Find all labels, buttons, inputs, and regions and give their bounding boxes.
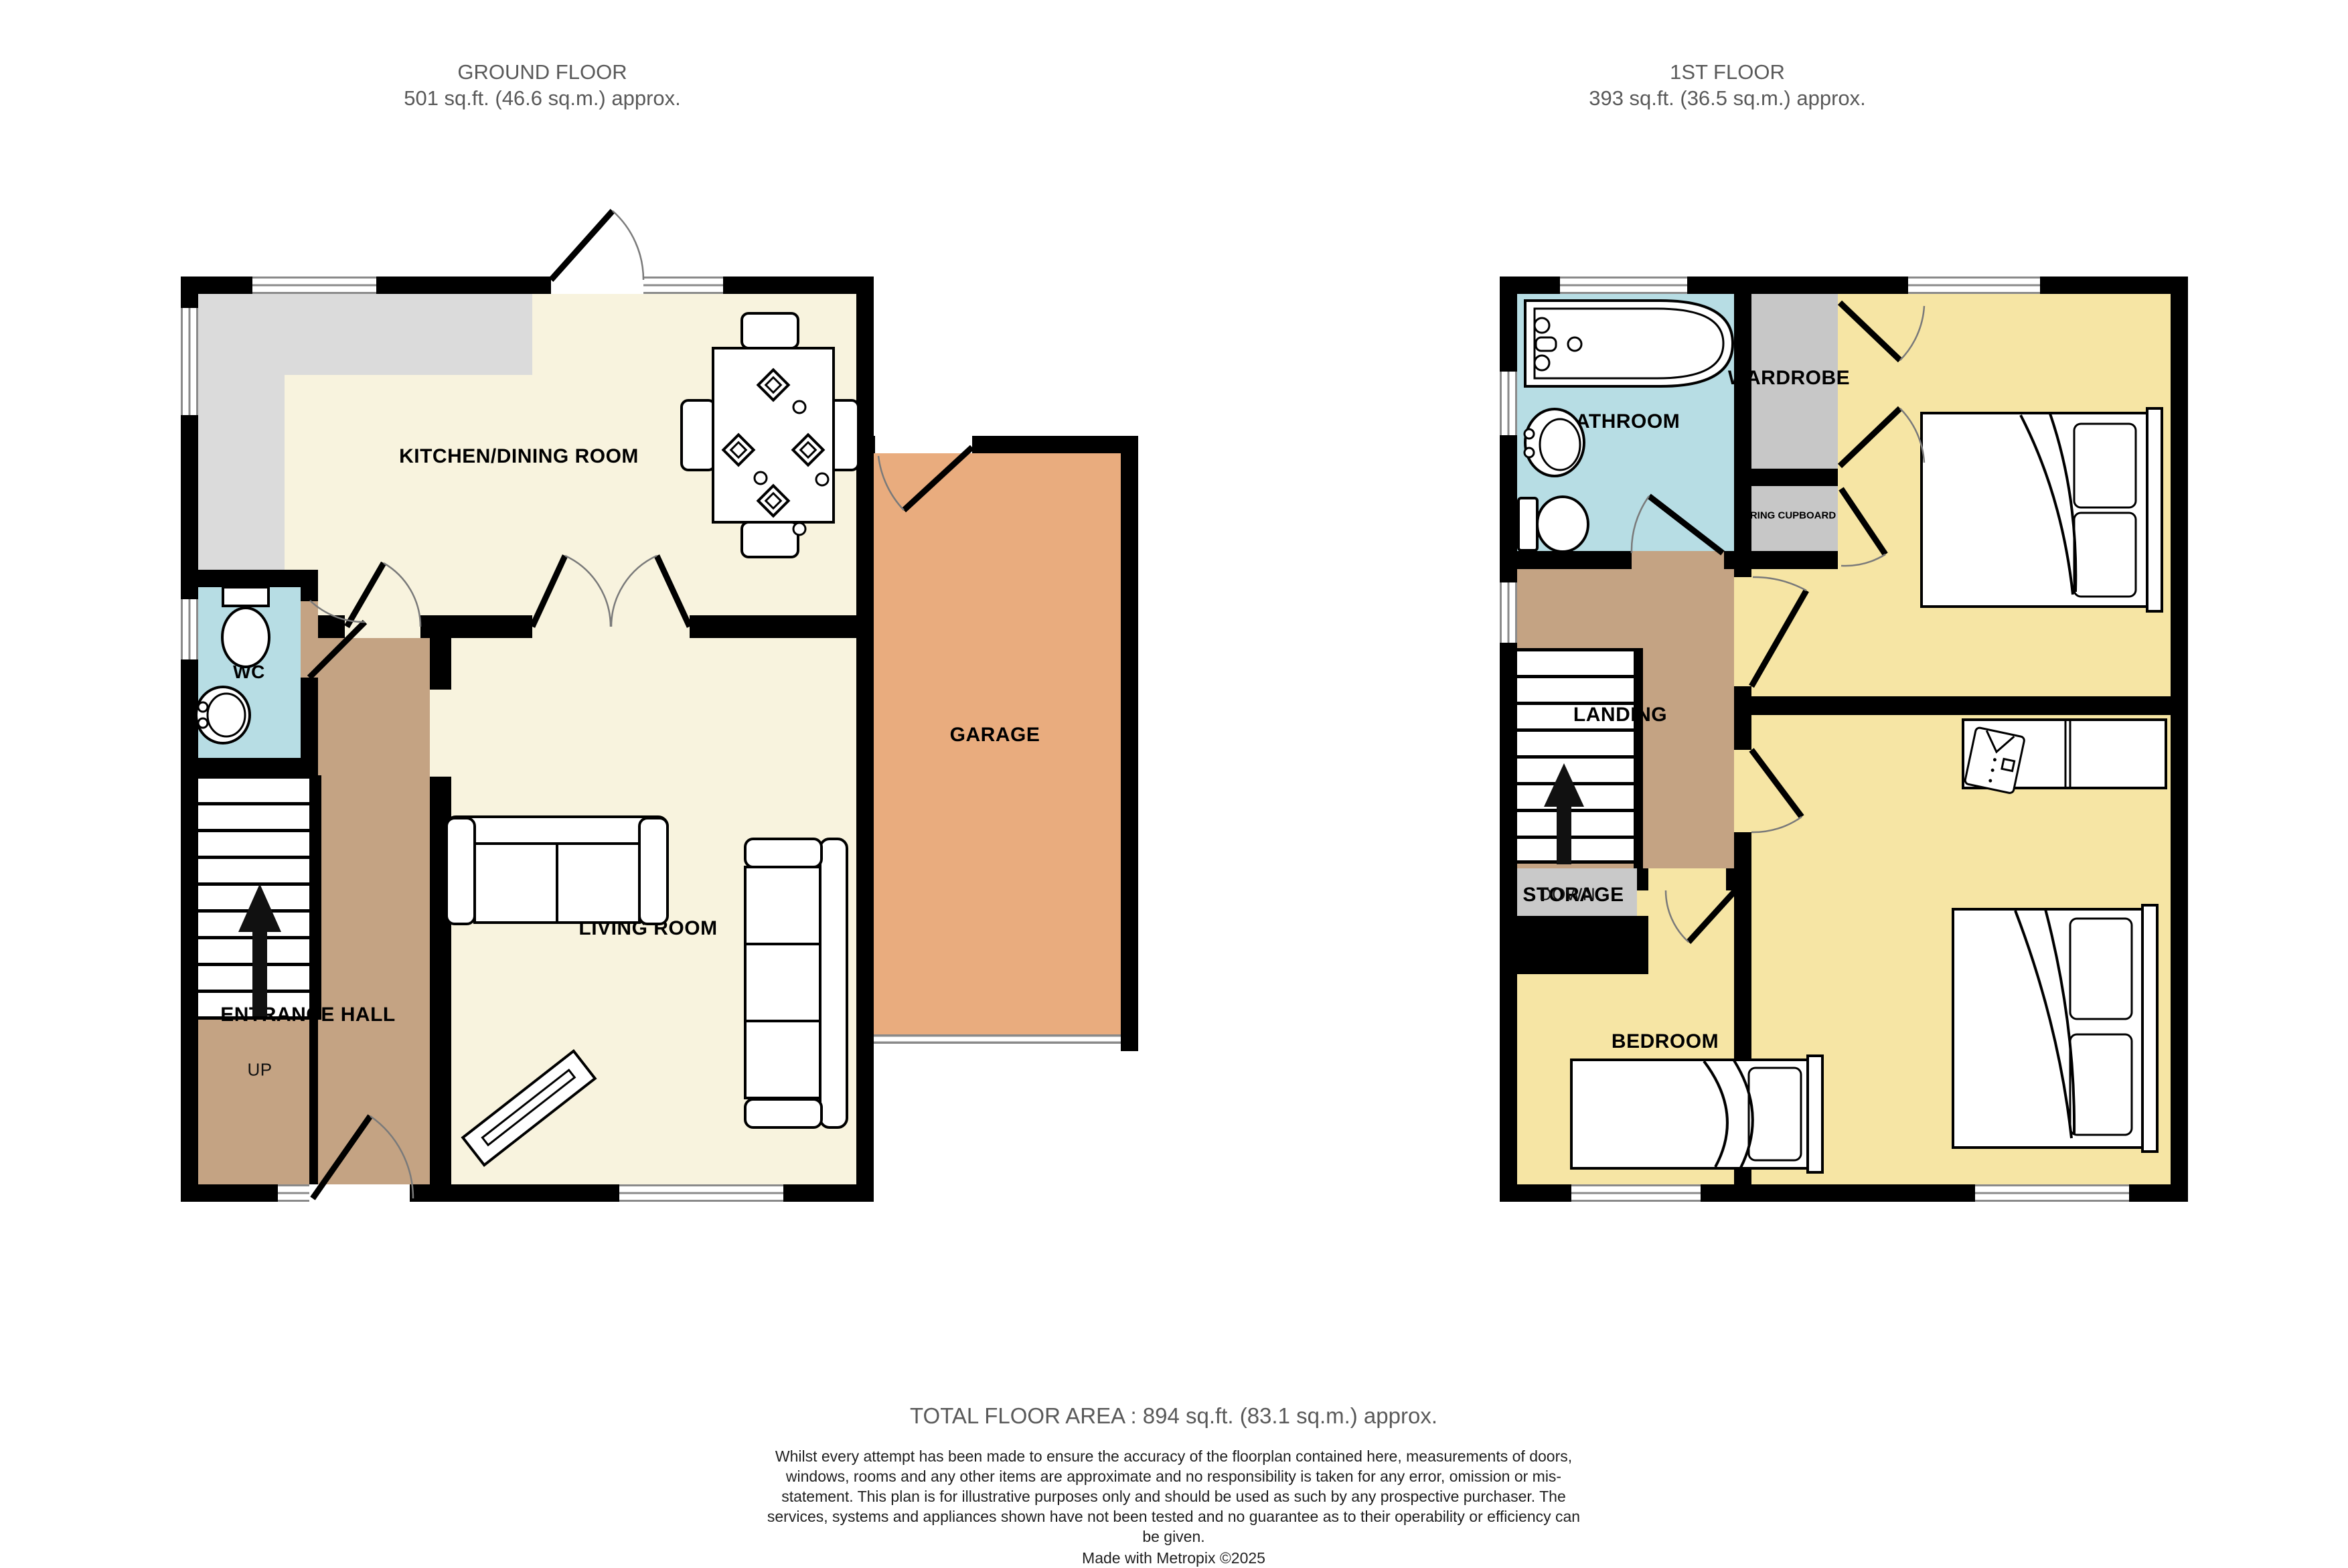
tv-unit-icon (463, 1051, 595, 1165)
sofa-icon (447, 817, 668, 924)
wardrobe-door-leaf (1840, 303, 1900, 360)
double-bed-icon (1953, 905, 2157, 1152)
door-arc (611, 556, 657, 627)
door-arc (565, 556, 611, 627)
front-door-leaf (313, 1116, 370, 1198)
door-arc (370, 1116, 413, 1198)
door-arc (1753, 577, 1806, 591)
stairs-up-arrow (238, 884, 281, 1016)
bathtub-icon (1525, 301, 1733, 386)
footer: TOTAL FLOOR AREA : 894 sq.ft. (83.1 sq.m… (759, 1403, 1589, 1568)
wardrobe-door-leaf (1840, 408, 1900, 466)
door-arc (613, 211, 643, 280)
sink-icon (196, 687, 250, 743)
door-arc (878, 456, 904, 510)
stairs-down-arrow (1544, 763, 1584, 864)
double-bed-icon (1922, 408, 2162, 611)
door-arc (1900, 306, 1924, 360)
sofa-icon (745, 839, 847, 1127)
door-arc (1666, 890, 1689, 942)
dining-table-icon (682, 313, 858, 557)
door-arc (1632, 496, 1649, 553)
french-door-leaf (657, 556, 690, 627)
bedroom-front-door-leaf (1751, 591, 1806, 686)
floorplan-page: { "ground_floor": { "title": "GROUND FLO… (0, 0, 2348, 1544)
back-door-leaf (551, 211, 613, 280)
fixtures-overlay (0, 0, 2348, 1544)
total-floor-area: TOTAL FLOOR AREA : 894 sq.ft. (83.1 sq.m… (759, 1403, 1589, 1429)
toilet-icon (222, 587, 269, 667)
door-arc (384, 563, 420, 627)
disclaimer-text: Whilst every attempt has been made to en… (759, 1446, 1589, 1547)
metropix-credit: Made with Metropix ©2025 (759, 1548, 1589, 1568)
garage-door-leaf (904, 447, 972, 510)
french-door-leaf (532, 556, 565, 627)
door-arc (1841, 554, 1885, 566)
toilet-icon (1518, 497, 1588, 552)
single-bed-icon (1571, 1056, 1822, 1172)
basin-icon (1524, 409, 1584, 476)
bedroom-back-door-leaf (1751, 750, 1802, 817)
wc-door-leaf (309, 622, 365, 678)
door-arc (1751, 817, 1802, 832)
bedroom-single-door-leaf (1689, 890, 1735, 942)
kitchen-hall-door-leaf (347, 563, 384, 627)
bathroom-door-leaf (1649, 496, 1723, 553)
airing-cupboard-door-leaf (1841, 489, 1885, 554)
shirt-icon (1964, 727, 2025, 794)
